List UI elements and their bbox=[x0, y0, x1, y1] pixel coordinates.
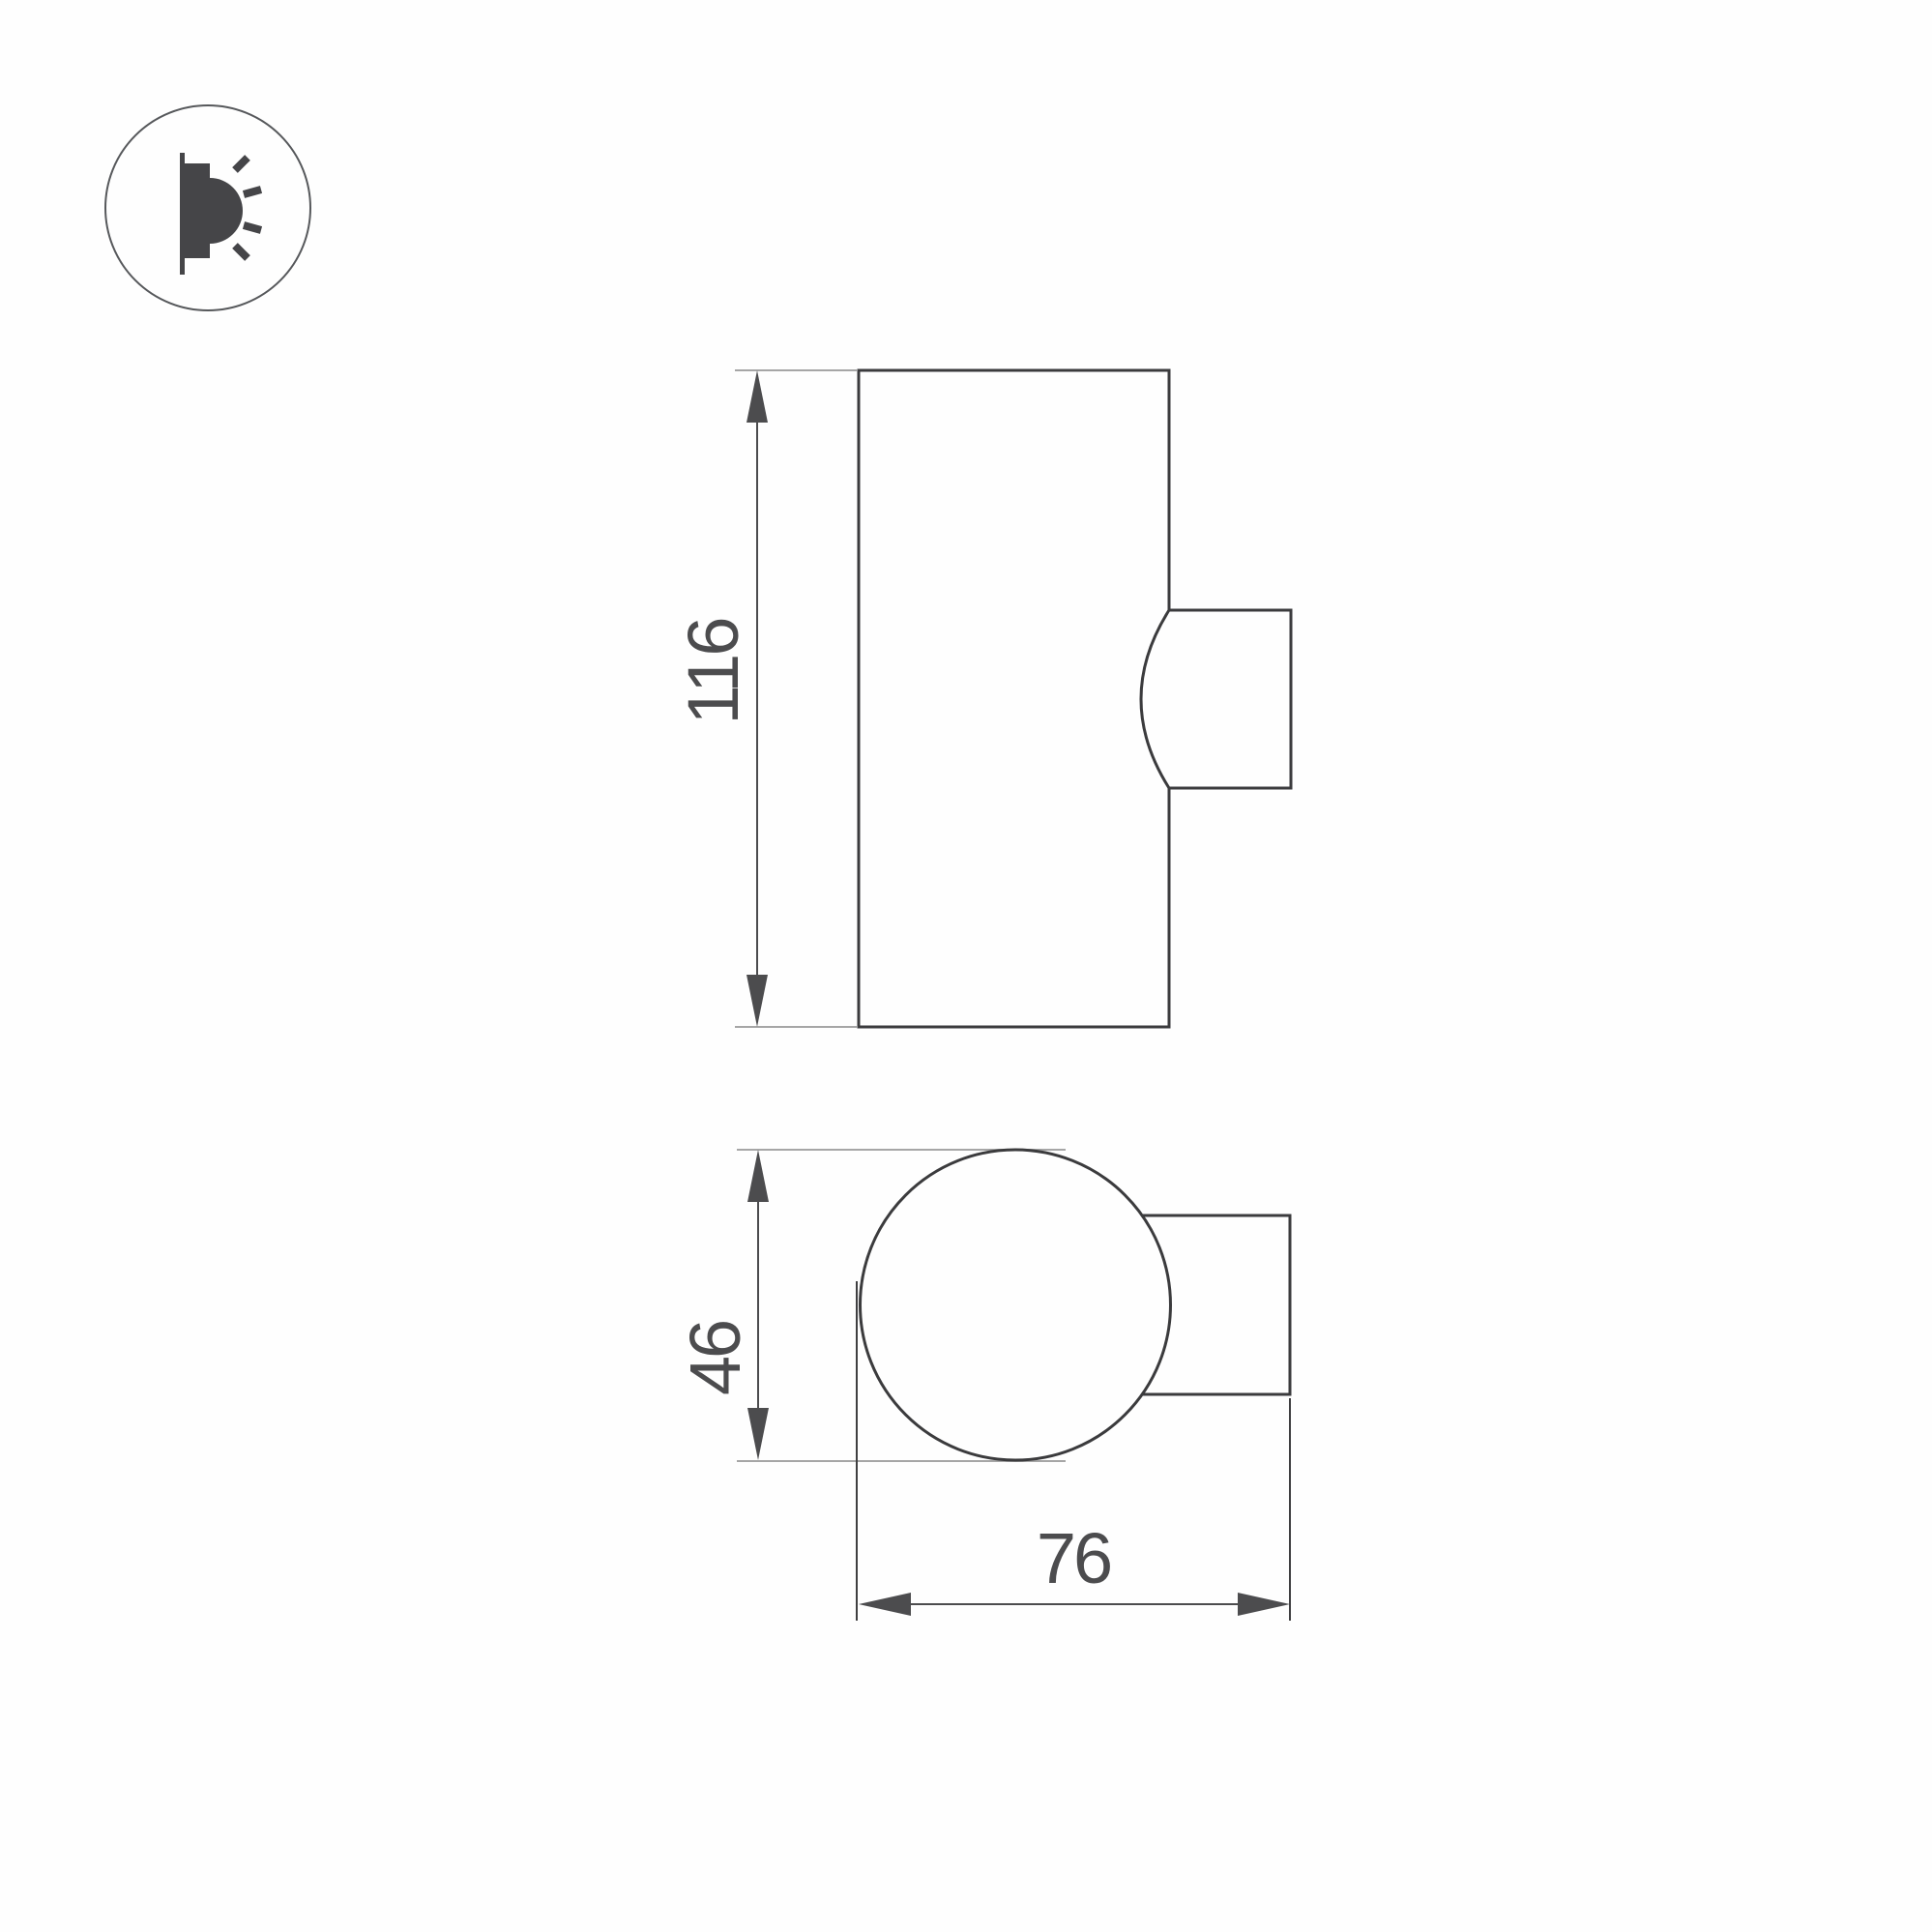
wall-mount-bracket-plan bbox=[1142, 1215, 1290, 1394]
cylinder-body-outline bbox=[859, 370, 1169, 1027]
icon-wall-plate bbox=[180, 153, 185, 275]
arrowhead-left-icon bbox=[859, 1593, 911, 1616]
arrowhead-down-icon bbox=[746, 975, 768, 1027]
arrowhead-down-icon bbox=[747, 1408, 769, 1460]
cylinder-top-outline bbox=[861, 1150, 1171, 1460]
wall-light-icon bbox=[105, 105, 310, 310]
plan-view: 46 76 bbox=[675, 1150, 1290, 1621]
icon-light-dome bbox=[210, 178, 243, 244]
arrowhead-up-icon bbox=[746, 370, 768, 423]
arrowhead-right-icon bbox=[1238, 1593, 1290, 1616]
diameter-dimension-label: 46 bbox=[675, 1322, 755, 1395]
technical-drawing-page: 116 46 bbox=[0, 0, 1932, 1932]
diameter-dimension: 46 bbox=[675, 1150, 769, 1460]
side-view: 116 bbox=[673, 370, 1291, 1027]
height-dimension: 116 bbox=[673, 370, 768, 1027]
depth-dimension: 76 bbox=[857, 1281, 1290, 1621]
height-dimension-label: 116 bbox=[673, 620, 753, 725]
arrowhead-up-icon bbox=[747, 1150, 769, 1202]
depth-dimension-label: 76 bbox=[1037, 1518, 1110, 1598]
icon-lamp-body bbox=[185, 163, 210, 258]
wall-mount-bracket-side bbox=[1141, 610, 1291, 788]
wall-lamp-dimension-drawing: 116 46 bbox=[0, 0, 1932, 1932]
